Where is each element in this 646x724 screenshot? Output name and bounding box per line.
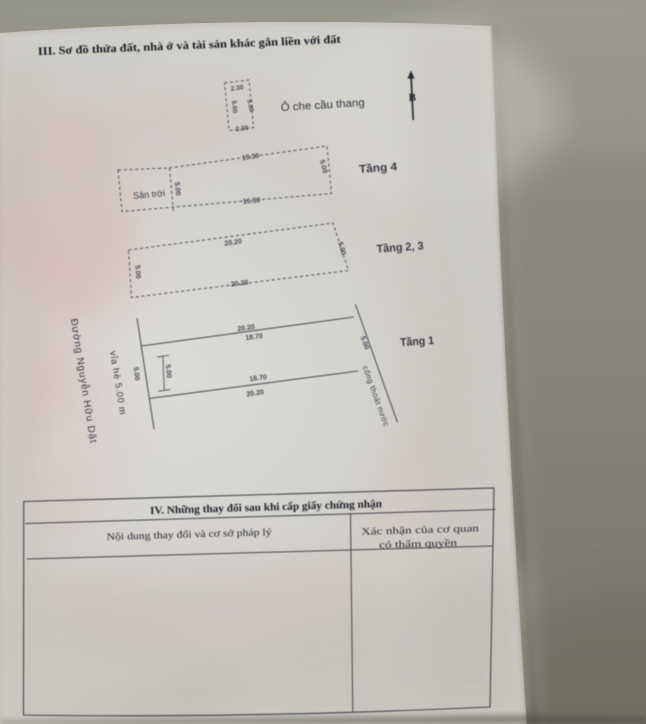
svg-text:B: B xyxy=(408,92,416,104)
svg-text:có thẩm quyền: có thẩm quyền xyxy=(379,538,457,551)
svg-text:Tầng 1: Tầng 1 xyxy=(400,335,435,349)
svg-text:5.00: 5.00 xyxy=(164,364,172,378)
svg-text:5.00: 5.00 xyxy=(230,100,238,114)
svg-text:5.00: 5.00 xyxy=(133,265,141,279)
svg-text:5.00: 5.00 xyxy=(132,367,140,381)
svg-text:5.00: 5.00 xyxy=(173,182,181,196)
